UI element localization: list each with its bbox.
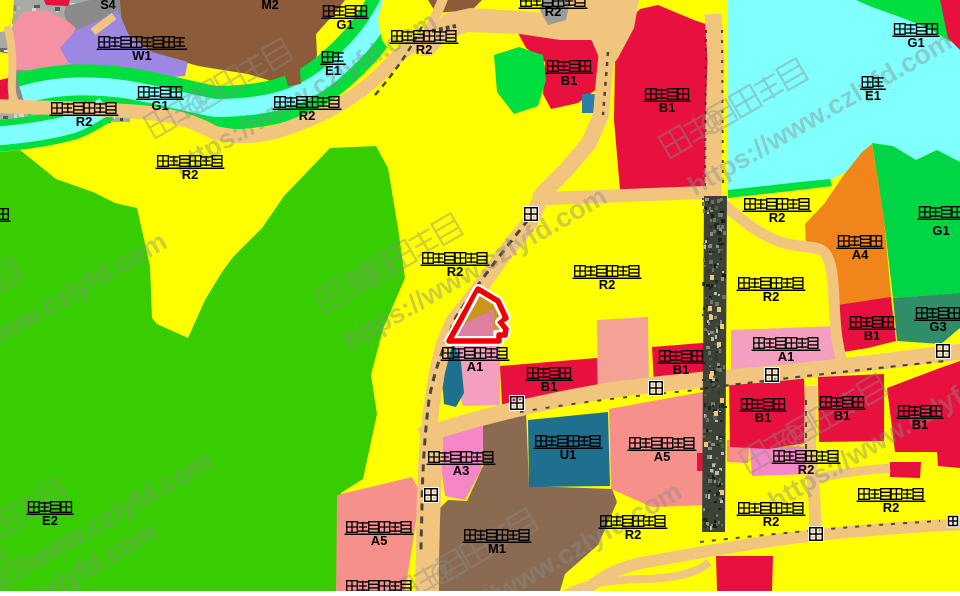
svg-text:G1: G1: [151, 98, 168, 113]
svg-text:S4: S4: [100, 0, 115, 12]
svg-text:R2: R2: [763, 514, 780, 529]
svg-text:B1: B1: [912, 417, 929, 432]
svg-text:G1: G1: [907, 35, 924, 50]
svg-text:A4: A4: [852, 247, 869, 262]
svg-text:U1: U1: [560, 447, 577, 462]
svg-text:B1: B1: [659, 100, 676, 115]
svg-text:A5: A5: [654, 449, 671, 464]
svg-text:R2: R2: [416, 42, 433, 57]
svg-text:G3: G3: [929, 319, 946, 334]
svg-text:R2: R2: [299, 108, 316, 123]
svg-text:M1: M1: [488, 541, 506, 556]
svg-text:R2: R2: [182, 167, 199, 182]
svg-text:B1: B1: [561, 73, 578, 88]
svg-text:M2: M2: [261, 0, 278, 12]
svg-text:R2: R2: [769, 210, 786, 225]
svg-text:R2: R2: [625, 527, 642, 542]
svg-text:B1: B1: [673, 362, 690, 377]
svg-text:A5: A5: [371, 533, 388, 548]
svg-text:A1: A1: [467, 359, 484, 374]
svg-text:R2: R2: [798, 462, 815, 477]
svg-text:B1: B1: [541, 379, 558, 394]
svg-text:A1: A1: [778, 349, 795, 364]
svg-text:R2: R2: [599, 277, 616, 292]
svg-text:B1: B1: [755, 410, 772, 425]
svg-text:R2: R2: [545, 4, 562, 19]
svg-text:B1: B1: [864, 328, 881, 343]
svg-text:G1: G1: [932, 223, 949, 238]
svg-text:R2: R2: [883, 500, 900, 515]
svg-text:A3: A3: [453, 463, 470, 478]
svg-text:R2: R2: [763, 289, 780, 304]
svg-text:R2: R2: [76, 114, 93, 129]
svg-text:R2: R2: [447, 264, 464, 279]
svg-text:E1: E1: [325, 63, 341, 78]
svg-text:E1: E1: [865, 88, 881, 103]
svg-text:E2: E2: [42, 513, 58, 528]
svg-text:G1: G1: [336, 17, 353, 32]
svg-text:W1: W1: [132, 48, 152, 63]
svg-text:B1: B1: [834, 408, 851, 423]
